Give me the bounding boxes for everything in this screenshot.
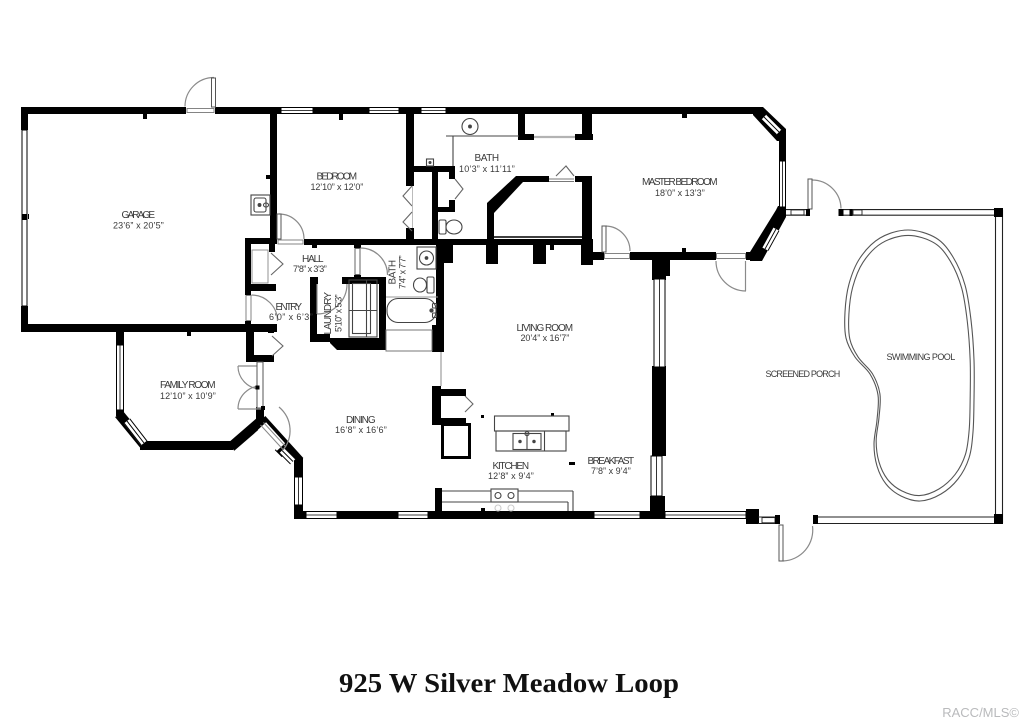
svg-text:925 W Silver Meadow Loop: 925 W Silver Meadow Loop [339,668,679,698]
svg-text:6’0” x 6’3”: 6’0” x 6’3” [269,312,313,322]
svg-text:LAUNDRY: LAUNDRY [323,292,334,335]
svg-text:7’8” x 3’3”: 7’8” x 3’3” [293,264,327,274]
svg-text:RACC/MLS©: RACC/MLS© [942,705,1019,720]
svg-text:12’10” x 10’9”: 12’10” x 10’9” [160,391,216,401]
svg-text:SCREENED PORCH: SCREENED PORCH [766,369,841,379]
svg-text:MASTER BEDROOM: MASTER BEDROOM [642,177,718,188]
svg-text:23’6” x 20’5”: 23’6” x 20’5” [113,221,164,231]
svg-text:5’10” x 5’3”: 5’10” x 5’3” [334,294,344,332]
svg-text:12’8” x 9’4”: 12’8” x 9’4” [488,471,534,481]
svg-text:18’0” x 13’3”: 18’0” x 13’3” [655,188,705,198]
svg-text:10’3” x 11’11”: 10’3” x 11’11” [459,164,515,174]
svg-text:SWIMMING POOL: SWIMMING POOL [887,352,956,362]
svg-text:BEDROOM: BEDROOM [317,172,358,183]
svg-text:GARAGE: GARAGE [122,210,156,221]
svg-text:FAMILY ROOM: FAMILY ROOM [160,380,216,391]
svg-text:7’8” x 9’4”: 7’8” x 9’4” [591,466,631,476]
svg-text:12’10” x 12’0”: 12’10” x 12’0” [311,182,364,192]
svg-text:16’8” x 16’6”: 16’8” x 16’6” [335,425,387,435]
svg-text:7’4” x 7’7”: 7’4” x 7’7” [398,255,408,289]
svg-text:20’4” x 16’7”: 20’4” x 16’7” [521,333,570,343]
svg-text:BATH: BATH [475,153,500,164]
